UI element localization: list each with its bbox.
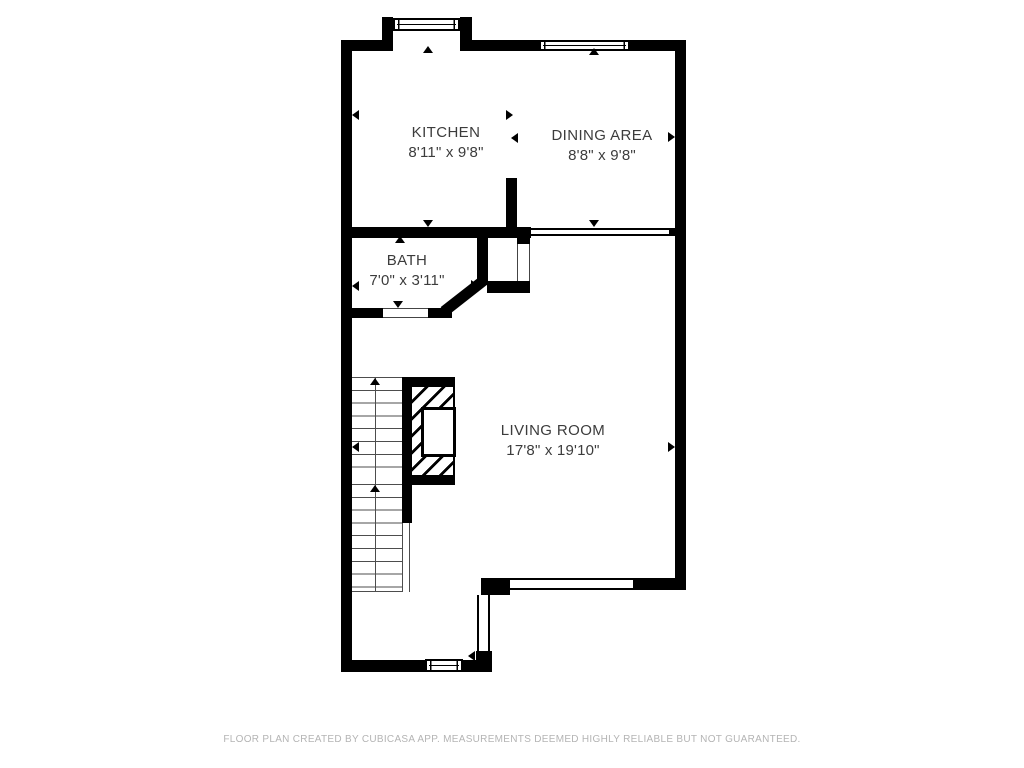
opening-marker-down-icon — [393, 301, 403, 308]
opening-marker-left-icon — [352, 110, 359, 120]
wall-living-bottom-right — [633, 578, 686, 590]
opening-marker-up-icon — [395, 236, 405, 243]
opening-marker-right-icon — [668, 442, 675, 452]
wall-stairs-right — [402, 377, 412, 523]
wall-kitchen-bath-divider — [352, 227, 531, 238]
dining-living-opening — [531, 228, 676, 236]
wall-bath-bottom-left — [352, 308, 383, 318]
fireplace-bottom-wall — [402, 475, 455, 485]
room-label-kitchen: KITCHEN 8'11" x 9'8" — [356, 123, 536, 163]
opening-end-nub — [669, 229, 676, 235]
stairs-lower-flight — [352, 484, 402, 592]
wall-top-mid-segment — [472, 40, 539, 51]
wall-closet-door-stub-bottom — [517, 281, 530, 293]
disclaimer-text: FLOOR PLAN CREATED BY CUBICASA APP. MEAS… — [0, 734, 1024, 745]
room-dimensions: 7'0" x 3'11" — [327, 271, 487, 291]
opening-marker-down-icon — [589, 220, 599, 227]
wall-top-left-segment — [341, 40, 382, 51]
stairs-up-arrow-icon — [370, 485, 380, 492]
kitchen-bay-window — [393, 18, 460, 31]
opening-marker-left-icon — [352, 442, 359, 452]
opening-marker-up-icon — [589, 48, 599, 55]
room-dimensions: 8'11" x 9'8" — [356, 143, 536, 163]
wall-bay-jamb-left — [382, 17, 393, 51]
fireplace-top-wall — [402, 377, 455, 387]
room-label-living: LIVING ROOM 17'8" x 19'10" — [453, 421, 653, 461]
room-dimensions: 17'8" x 19'10" — [453, 441, 653, 461]
room-name: DINING AREA — [512, 126, 692, 146]
room-name: LIVING ROOM — [453, 421, 653, 441]
room-name: KITCHEN — [356, 123, 536, 143]
dining-window — [539, 40, 630, 51]
room-label-bath: BATH 7'0" x 3'11" — [327, 251, 487, 291]
entry-bottom-window — [425, 659, 463, 672]
wall-closet-door-stub-top — [517, 233, 530, 244]
wall-outer-bottom — [341, 660, 492, 672]
entry-side-window — [477, 595, 490, 653]
wall-bay-jamb-right — [460, 17, 472, 51]
fireplace-firebox — [421, 407, 456, 457]
stairs-up-arrow-icon — [370, 378, 380, 385]
room-dimensions: 8'8" x 9'8" — [512, 146, 692, 166]
floor-plan-canvas: KITCHEN 8'11" x 9'8" DINING AREA 8'8" x … — [0, 0, 1024, 768]
opening-marker-right-icon — [506, 110, 513, 120]
living-room-window — [510, 578, 633, 590]
room-label-dining: DINING AREA 8'8" x 9'8" — [512, 126, 692, 166]
wall-outer-right — [675, 40, 686, 590]
opening-marker-down-icon — [423, 220, 433, 227]
wall-outer-left — [341, 40, 352, 672]
wall-living-bottom-corner — [481, 578, 510, 595]
stairs-rail — [402, 523, 410, 592]
bath-door-opening — [383, 308, 428, 318]
room-name: BATH — [327, 251, 487, 271]
stairs-upper-flight — [352, 377, 402, 470]
opening-marker-up-icon — [423, 46, 433, 53]
stairs-center-line — [375, 377, 376, 591]
closet-door-opening — [517, 244, 530, 281]
